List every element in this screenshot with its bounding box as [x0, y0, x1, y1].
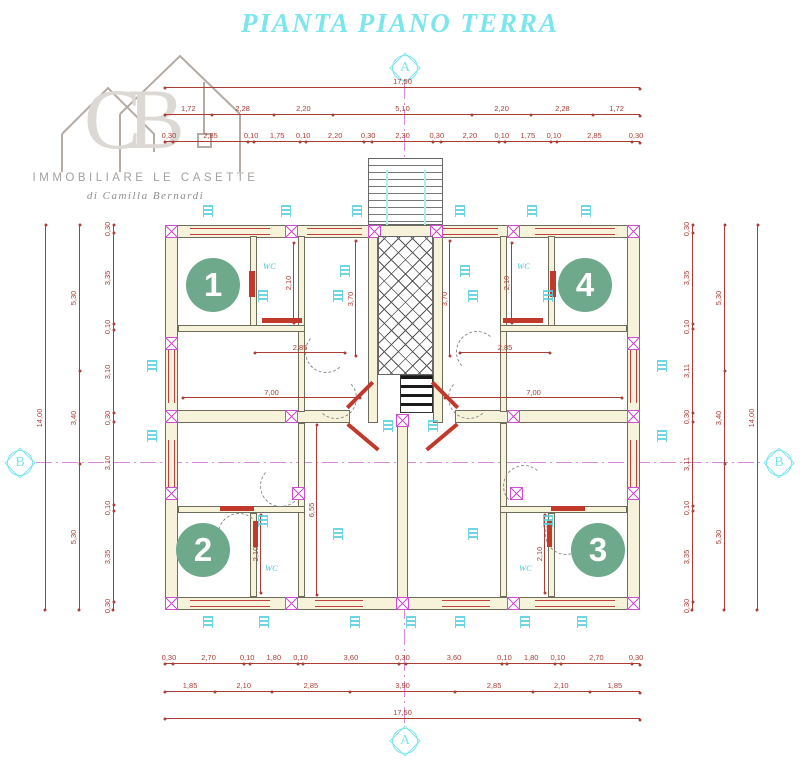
dim-segment: 3,10: [113, 422, 127, 506]
dim-label: 3,70: [346, 291, 355, 306]
marker-letter: B: [7, 450, 33, 476]
dim-segment: 0,30: [632, 128, 640, 142]
dim-right-detail: 0,303,350,103,110,303,110,103,350,30: [692, 225, 706, 610]
column-marker: [165, 225, 178, 238]
dim-label: 3,35: [104, 549, 112, 564]
wall-unit1-partition: [178, 325, 305, 332]
window: [315, 600, 363, 607]
dim-label: 2,10: [554, 682, 569, 690]
dim-segment: 1,80: [507, 650, 555, 664]
dim-top-detail: 0,302,850,101,750,102,200,302,300,302,20…: [165, 128, 640, 142]
dim-interior-room: 7,00: [445, 397, 622, 398]
dim-segment: 2,20: [274, 101, 334, 115]
dim-segment: 3,35: [692, 233, 706, 323]
dim-label: 3,60: [344, 654, 359, 662]
dim-label: 1,80: [267, 654, 282, 662]
shutter-icon: [352, 205, 362, 217]
dim-label: 3,11: [683, 456, 691, 470]
logo-company-name: IMMOBILIARE LE CASETTE: [28, 172, 263, 184]
dim-label: 1,85: [183, 682, 198, 690]
dim-label: 0,30: [683, 599, 691, 614]
column-marker: [396, 414, 409, 427]
shutter-icon: [577, 616, 587, 628]
dim-label: 0,10: [104, 501, 112, 516]
dim-segment: 14,00: [45, 225, 59, 610]
dim-bottom-detail: 0,302,700,101,800,103,600,303,600,101,80…: [165, 650, 640, 664]
dim-label: 1,72: [181, 105, 196, 113]
dim-label: 5,30: [715, 530, 723, 545]
dim-label: 2,10: [535, 547, 544, 562]
dim-label: 2,10: [236, 682, 251, 690]
dim-segment: 1,75: [254, 128, 300, 142]
dim-label: 0,10: [683, 319, 691, 334]
dim-label: 2,10: [251, 547, 260, 562]
dim-label: 0,30: [629, 654, 644, 662]
dim-label: 2,20: [494, 105, 509, 113]
window: [630, 345, 637, 403]
floor-plan: 1 4 2 3 WC WC WC WC 7,00 7,00 2,85 2,85 …: [165, 225, 640, 610]
room-label-wc: WC: [519, 563, 532, 573]
dim-label: 1,75: [521, 132, 536, 140]
dim-bottom-total: 17,50: [165, 705, 640, 719]
dim-segment: 3,40: [724, 371, 738, 465]
dim-label: 2,20: [296, 105, 311, 113]
dim-segment: 17,50: [165, 74, 640, 88]
dim-label: 17,50: [393, 78, 412, 86]
shutter-icon: [203, 616, 213, 628]
shutter-icon: [455, 616, 465, 628]
dim-label: 7,00: [264, 388, 279, 397]
dim-label: 2,20: [463, 132, 478, 140]
dim-label: 3,35: [683, 549, 691, 564]
shutter-icon: [147, 360, 157, 372]
dim-label: 2,28: [555, 105, 570, 113]
dim-label: 5,30: [70, 291, 78, 306]
dim-label: 2,70: [201, 654, 216, 662]
dim-segment: 2,20: [306, 128, 364, 142]
floor-plan-canvas: PIANTA PIANO TERRA CB IMMOBILIARE LE CAS…: [0, 0, 800, 763]
dim-label: 2,85: [293, 343, 308, 352]
wall-unit4-hall: [500, 236, 507, 412]
dim-label: 2,10: [284, 276, 293, 291]
shutter-icon: [406, 616, 416, 628]
column-marker: [507, 410, 520, 423]
dim-label: 5,10: [395, 105, 410, 113]
dim-label: 3,70: [440, 291, 449, 306]
dim-label: 0,30: [104, 410, 112, 425]
dim-segment: 2,10: [215, 678, 272, 692]
dim-label: 1,75: [270, 132, 285, 140]
dim-label: 0,30: [683, 410, 691, 425]
dim-interior-hall-height: 6,55: [316, 425, 317, 595]
dim-label: 0,10: [104, 319, 112, 334]
dim-label: 0,30: [104, 599, 112, 614]
dim-segment: 2,70: [173, 650, 244, 664]
dim-label: 5,30: [715, 291, 723, 306]
radiator-icon: [340, 265, 350, 277]
dim-label: 2,85: [487, 682, 502, 690]
column-marker: [285, 597, 298, 610]
column-marker: [627, 487, 640, 500]
dim-segment: 3,35: [113, 233, 127, 324]
stair-flight-inner: [400, 375, 433, 413]
dim-top-main: 1,722,282,205,102,202,281,72: [165, 101, 640, 115]
window: [307, 228, 362, 235]
dim-segment: 3,40: [79, 371, 93, 465]
dim-label: 3,10: [104, 364, 112, 379]
radiator-icon: [333, 290, 343, 302]
dim-segment: 2,85: [557, 128, 632, 142]
dim-label: 0,30: [104, 222, 112, 237]
dim-interior-room: 7,00: [183, 397, 360, 398]
dim-interior-stair: 3,70: [449, 241, 450, 356]
radiator-icon: [428, 420, 438, 432]
dim-segment: 2,70: [561, 650, 632, 664]
logo-tagline: di Camilla Bernardi: [28, 190, 263, 202]
dim-label: 3,35: [104, 271, 112, 286]
column-marker: [165, 337, 178, 350]
dim-label: 3,40: [715, 410, 723, 425]
dim-segment: 5,30: [79, 464, 93, 610]
dim-top-total: 17,50: [165, 74, 640, 88]
dim-segment: 2,20: [441, 128, 499, 142]
door-arc: [260, 465, 302, 507]
dim-left-main: 5,303,405,30: [79, 225, 93, 610]
column-marker: [285, 225, 298, 238]
dim-segment: 5,10: [333, 101, 471, 115]
dim-segment: 1,72: [165, 101, 212, 115]
column-marker: [627, 337, 640, 350]
column-marker: [165, 410, 178, 423]
dim-segment: 5,30: [724, 225, 738, 371]
window: [535, 600, 615, 607]
dim-label: 1,85: [608, 682, 623, 690]
unit-badge-2: 2: [176, 523, 230, 577]
door-leaf: [551, 506, 585, 511]
unit-badge-1: 1: [186, 258, 240, 312]
window: [442, 600, 490, 607]
dim-label: 14,00: [748, 408, 756, 427]
dim-label: 3,10: [104, 456, 112, 471]
page-title: PIANTA PIANO TERRA: [0, 8, 800, 39]
radiator-icon: [543, 515, 553, 527]
dim-interior-hall: 2,85: [460, 352, 550, 353]
entrance-stairs: [368, 158, 443, 225]
dim-segment: 3,35: [692, 511, 706, 601]
door-arc: [503, 465, 545, 507]
dim-label: 1,72: [609, 105, 624, 113]
unit-badge-4: 4: [558, 258, 612, 312]
dim-segment: 3,60: [303, 650, 398, 664]
door-leaf: [249, 271, 255, 297]
dim-interior-wc: 2,10: [511, 243, 512, 323]
marker-letter: A: [392, 728, 418, 754]
dim-label: 2,85: [498, 343, 513, 352]
dim-segment: 2,85: [173, 128, 248, 142]
dim-right-total: 14,00: [757, 225, 771, 610]
dim-segment: 2,20: [472, 101, 532, 115]
radiator-icon: [333, 528, 343, 540]
shutter-icon: [520, 616, 530, 628]
company-logo: CB IMMOBILIARE LE CASETTE di Camilla Ber…: [28, 42, 263, 210]
wall-stair-shaft-left: [368, 236, 378, 423]
radiator-icon: [383, 420, 393, 432]
dim-segment: 17,50: [165, 705, 640, 719]
dim-segment: 14,00: [757, 225, 771, 610]
room-label-wc: WC: [517, 261, 530, 271]
shutter-icon: [657, 360, 667, 372]
dim-segment: 2,28: [531, 101, 593, 115]
dim-bottom-main: 1,852,102,853,902,852,101,85: [165, 678, 640, 692]
window: [190, 228, 270, 235]
dim-label: 3,40: [70, 410, 78, 425]
radiator-icon: [468, 528, 478, 540]
dim-segment: 2,10: [533, 678, 590, 692]
dim-segment: 3,90: [350, 678, 456, 692]
dim-label: 0,30: [629, 132, 644, 140]
dim-interior-hall: 2,85: [255, 352, 345, 353]
dim-label: 0,30: [683, 222, 691, 237]
entrance-door-leaf: [346, 423, 379, 452]
window: [168, 345, 175, 403]
dim-label: 0,10: [683, 501, 691, 516]
dim-segment: 2,28: [212, 101, 274, 115]
door-arc: [315, 377, 357, 419]
dim-label: 5,30: [70, 530, 78, 545]
radiator-icon: [460, 265, 470, 277]
column-marker: [627, 597, 640, 610]
radiator-icon: [258, 290, 268, 302]
dim-label: 2,20: [328, 132, 343, 140]
window: [190, 600, 270, 607]
column-marker: [507, 597, 520, 610]
shutter-icon: [259, 616, 269, 628]
dim-interior-stair: 3,70: [355, 241, 356, 356]
column-marker: [507, 225, 520, 238]
dim-label: 2,28: [235, 105, 250, 113]
wall-unit4-partition: [500, 325, 627, 332]
section-marker-b-left: B: [5, 448, 35, 478]
dim-label: 1,80: [524, 654, 539, 662]
column-marker: [165, 597, 178, 610]
column-marker: [627, 410, 640, 423]
wall-center-vertical: [397, 423, 408, 610]
dim-segment: 2,30: [372, 128, 433, 142]
dim-interior-wc: 2,10: [293, 243, 294, 323]
dim-label: 7,00: [526, 388, 541, 397]
column-marker: [396, 597, 409, 610]
dim-segment: 5,30: [724, 464, 738, 610]
window: [443, 228, 498, 235]
dim-label: 3,35: [683, 271, 691, 286]
dim-label: 14,00: [36, 408, 44, 427]
radiator-icon: [468, 290, 478, 302]
dim-label: 2,70: [589, 654, 604, 662]
dim-segment: 2,85: [272, 678, 349, 692]
shutter-icon: [581, 205, 591, 217]
logo-monogram: CB: [84, 76, 171, 162]
door-leaf: [220, 506, 254, 511]
dim-label: 2,85: [587, 132, 602, 140]
dim-label: 2,85: [203, 132, 218, 140]
column-marker: [165, 487, 178, 500]
dim-segment: 0,30: [632, 650, 640, 664]
room-label-wc: WC: [265, 563, 278, 573]
dim-left-detail: 0,303,350,103,100,303,100,103,350,30: [113, 225, 127, 610]
stair-landing: [378, 236, 433, 375]
shutter-icon: [147, 430, 157, 442]
unit-badge-3: 3: [571, 523, 625, 577]
dim-segment: 5,30: [79, 225, 93, 371]
dim-label: 2,10: [502, 276, 511, 291]
dim-label: 6,55: [307, 503, 316, 518]
section-marker-a-bottom: A: [390, 726, 420, 756]
wall-unit1-hall: [298, 236, 305, 412]
shutter-icon: [350, 616, 360, 628]
window: [535, 228, 615, 235]
room-label-wc: WC: [263, 261, 276, 271]
dim-label: 2,30: [395, 132, 410, 140]
dim-label: 17,50: [393, 709, 412, 717]
dim-segment: 1,75: [505, 128, 551, 142]
dim-right-main: 5,303,405,30: [724, 225, 738, 610]
dim-segment: 3,10: [113, 330, 127, 414]
radiator-icon: [543, 290, 553, 302]
door-arc: [448, 377, 490, 419]
shutter-icon: [527, 205, 537, 217]
dim-segment: 0,30: [113, 602, 127, 610]
dim-segment: 3,11: [692, 422, 706, 506]
dim-label: 2,85: [304, 682, 319, 690]
dim-label: 3,60: [447, 654, 462, 662]
column-marker: [627, 225, 640, 238]
dim-segment: 3,11: [692, 329, 706, 413]
dim-segment: 1,72: [593, 101, 640, 115]
dim-segment: 3,35: [113, 511, 127, 602]
dim-segment: 0,30: [692, 602, 706, 610]
dim-segment: 2,85: [455, 678, 532, 692]
dim-left-total: 14,00: [45, 225, 59, 610]
dim-segment: 1,85: [590, 678, 640, 692]
dim-segment: 1,85: [165, 678, 215, 692]
shutter-icon: [203, 205, 213, 217]
dim-segment: 3,60: [406, 650, 501, 664]
radiator-icon: [258, 515, 268, 527]
shutter-icon: [281, 205, 291, 217]
dim-label: 3,90: [395, 682, 410, 690]
dim-label: 3,11: [683, 364, 691, 378]
column-marker: [285, 410, 298, 423]
shutter-icon: [455, 205, 465, 217]
shutter-icon: [657, 430, 667, 442]
dim-segment: 1,80: [250, 650, 298, 664]
